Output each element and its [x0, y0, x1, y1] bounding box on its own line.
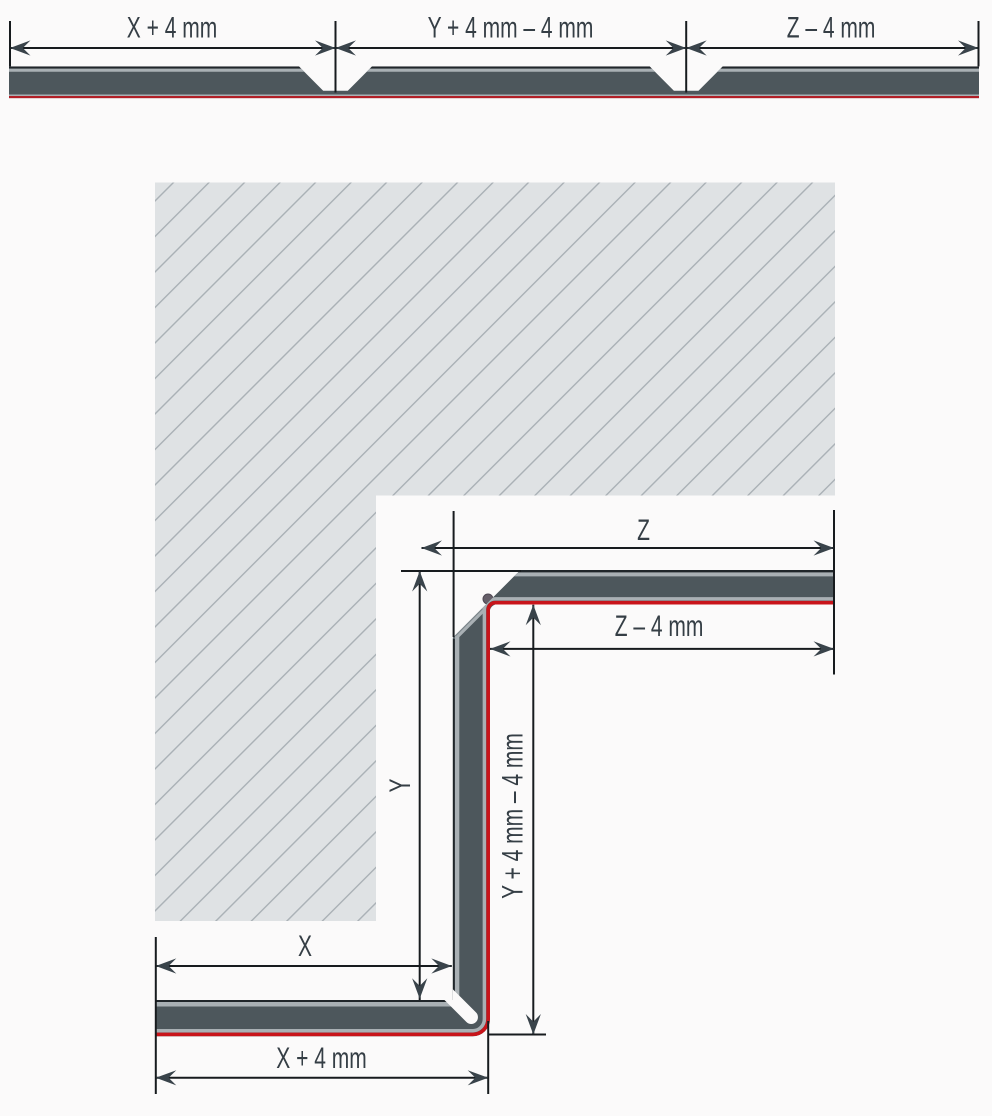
- svg-text:X + 4 mm: X + 4 mm: [127, 12, 217, 44]
- svg-text:Z – 4 mm: Z – 4 mm: [787, 12, 876, 44]
- svg-text:X: X: [298, 931, 312, 963]
- svg-text:Z – 4 mm: Z – 4 mm: [615, 611, 704, 643]
- svg-text:X + 4 mm: X + 4 mm: [276, 1043, 366, 1075]
- svg-text:Z: Z: [637, 515, 650, 547]
- svg-text:Y: Y: [385, 778, 417, 792]
- svg-text:Y + 4 mm – 4 mm: Y + 4 mm – 4 mm: [428, 12, 594, 44]
- svg-text:Y + 4 mm – 4 mm: Y + 4 mm – 4 mm: [497, 733, 529, 899]
